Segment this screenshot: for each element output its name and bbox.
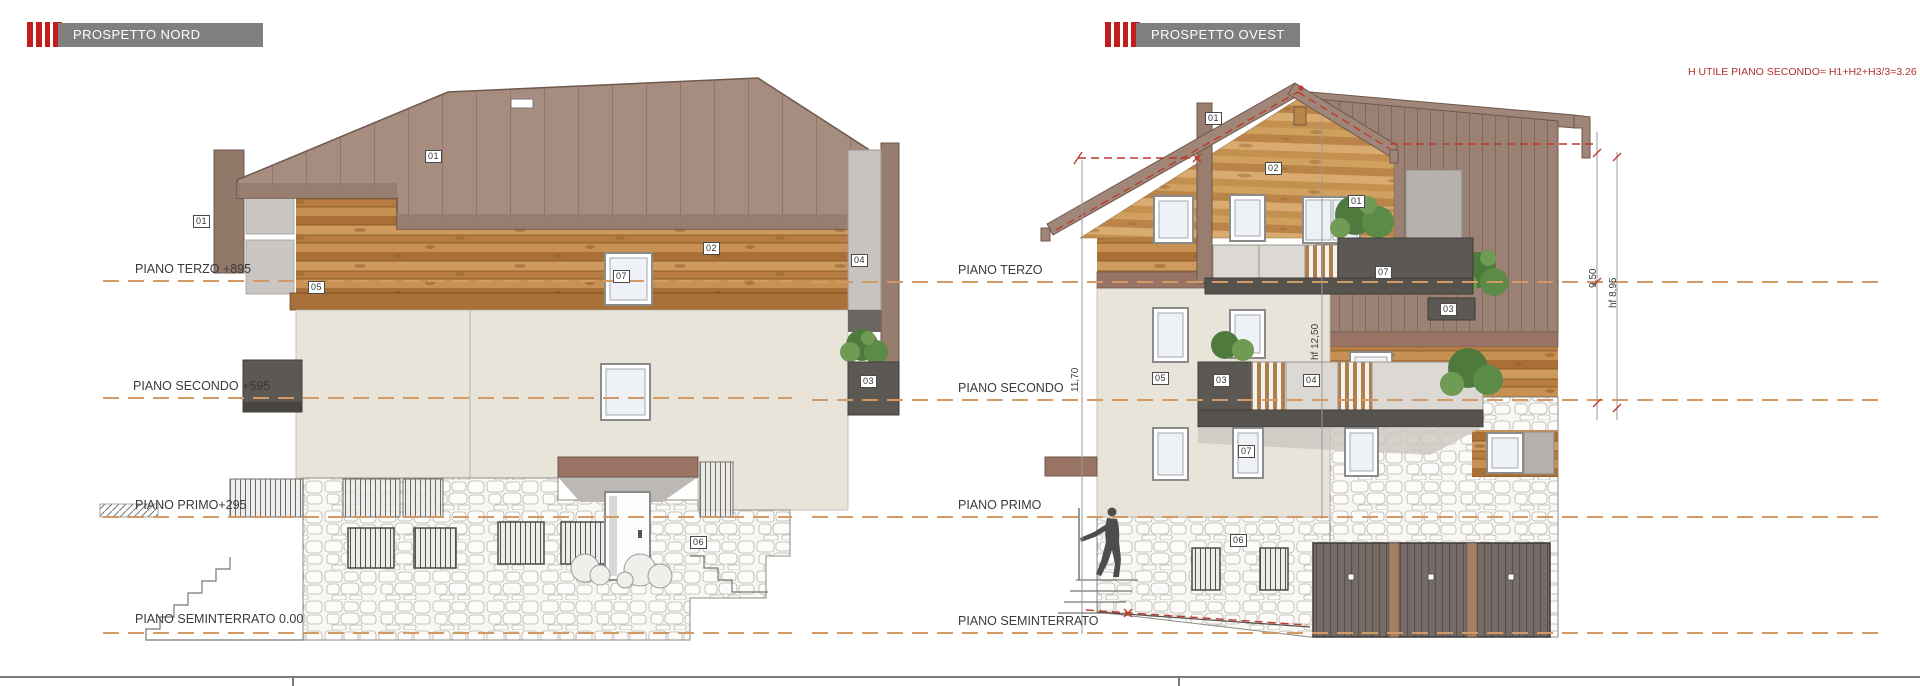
dim-9-50: 9,50 — [1588, 269, 1599, 288]
ovest-attic-window-right — [1230, 195, 1265, 241]
nord-left-stairs — [146, 557, 303, 640]
ovest-elevation — [812, 83, 1880, 637]
tag-01: 01 — [1205, 112, 1222, 125]
ovest-far-lower-window — [1487, 433, 1523, 473]
ovest-level-secondo: PIANO SECONDO — [958, 381, 1064, 395]
ovest-primo-window-right — [1345, 428, 1378, 476]
titleblock-divider — [292, 676, 294, 686]
ovest-level-terzo: PIANO TERZO — [958, 263, 1043, 277]
ovest-secondo-window-left — [1153, 308, 1188, 362]
nord-left-balcony-slab — [243, 402, 302, 412]
tag-01: 01 — [1348, 195, 1365, 208]
tag-02: 02 — [703, 242, 720, 255]
ovest-left-gutter — [1041, 228, 1050, 241]
tag-03: 03 — [860, 375, 877, 388]
tag-01: 01 — [425, 150, 442, 163]
tag-06: 06 — [1230, 534, 1247, 547]
nord-right-column — [848, 150, 881, 310]
ovest-far-lower-panel — [1524, 432, 1554, 474]
nord-level-primo: PIANO PRIMO+295 — [135, 498, 247, 512]
tag-07: 07 — [613, 270, 630, 283]
nord-level-secondo: PIANO SECONDO +595 — [133, 379, 270, 393]
sheet-logo-icon — [1105, 22, 1140, 47]
tag-02: 02 — [1265, 162, 1282, 175]
garage-handle — [1428, 574, 1434, 580]
ovest-garage — [1313, 543, 1550, 637]
drawing-canvas — [0, 0, 1920, 686]
ovest-title: PROSPETTO OVEST — [1151, 27, 1285, 42]
nord-door-panel — [609, 496, 617, 576]
ovest-attic-balcony — [1205, 238, 1473, 294]
tag-04: 04 — [1303, 374, 1320, 387]
garage-handle — [1348, 574, 1354, 580]
tag-01: 01 — [193, 215, 210, 228]
ovest-canopy — [1045, 457, 1097, 476]
nord-door-handle — [638, 530, 642, 538]
ovest-basement-window — [1260, 548, 1288, 590]
nord-title-bar: PROSPETTO NORD — [58, 23, 263, 47]
ovest-right-gutter — [1390, 150, 1398, 163]
ovest-title-bar: PROSPETTO OVEST — [1136, 23, 1300, 47]
tag-04: 04 — [851, 254, 868, 267]
sheet-logo-icon — [27, 22, 62, 47]
ovest-far-gutter — [1574, 115, 1590, 158]
tag-07: 07 — [1375, 266, 1392, 279]
ovest-ridge-block — [1294, 107, 1306, 125]
nord-basement-window — [348, 528, 394, 568]
nord-balcony-box — [848, 362, 899, 415]
tag-06: 06 — [690, 536, 707, 549]
nord-right-dark-strip — [848, 310, 881, 332]
nord-title: PROSPETTO NORD — [73, 27, 200, 42]
ovest-attic-sill — [1097, 272, 1207, 288]
tag-05: 05 — [308, 281, 325, 294]
ovest-attic-window-left — [1154, 196, 1193, 243]
nord-right-band — [881, 143, 899, 363]
nord-wood-sill — [290, 293, 852, 310]
nord-door-canopy — [558, 457, 698, 477]
nord-level-terzo: PIANO TERZO +895 — [135, 262, 251, 276]
titleblock-divider — [1178, 676, 1180, 686]
nord-elevation — [100, 78, 899, 640]
ovest-gable-post — [1197, 103, 1212, 283]
ovest-primo-window-left — [1153, 428, 1188, 480]
ovest-secondo-balcony — [1198, 362, 1483, 427]
ovest-basement-window — [1192, 548, 1220, 590]
titleblock-top-line — [0, 676, 1920, 678]
dim-11-70: 11,70 — [1070, 368, 1081, 392]
ovest-level-seminterrato: PIANO SEMINTERRATO — [958, 614, 1099, 628]
nord-gray-panel-lower — [246, 240, 294, 294]
tag-07: 07 — [1238, 445, 1255, 458]
nord-basement-window — [498, 522, 544, 564]
garage-handle — [1508, 574, 1514, 580]
nord-pilaster — [214, 150, 244, 273]
tag-03: 03 — [1213, 374, 1230, 387]
nord-level-seminterrato: PIANO SEMINTERRATO 0.00 — [135, 612, 303, 626]
ovest-level-primo: PIANO PRIMO — [958, 498, 1041, 512]
dim-hf-12-50: hf 12,50 — [1310, 324, 1321, 360]
dim-hf-8-95: hf 8,95 — [1608, 277, 1619, 308]
nord-window-middle — [601, 364, 650, 420]
red-annotation: H UTILE PIANO SECONDO= H1+H2+H3/3=3.26 — [1688, 66, 1917, 78]
nord-chimney — [511, 99, 533, 108]
nord-basement-window — [414, 528, 456, 568]
drawing-sheet: PROSPETTO NORD PROSPETTO OVEST H UTILE P… — [0, 0, 1920, 686]
tag-05: 05 — [1152, 372, 1169, 385]
tag-03: 03 — [1440, 303, 1457, 316]
ovest-far-fascia — [1316, 332, 1558, 347]
